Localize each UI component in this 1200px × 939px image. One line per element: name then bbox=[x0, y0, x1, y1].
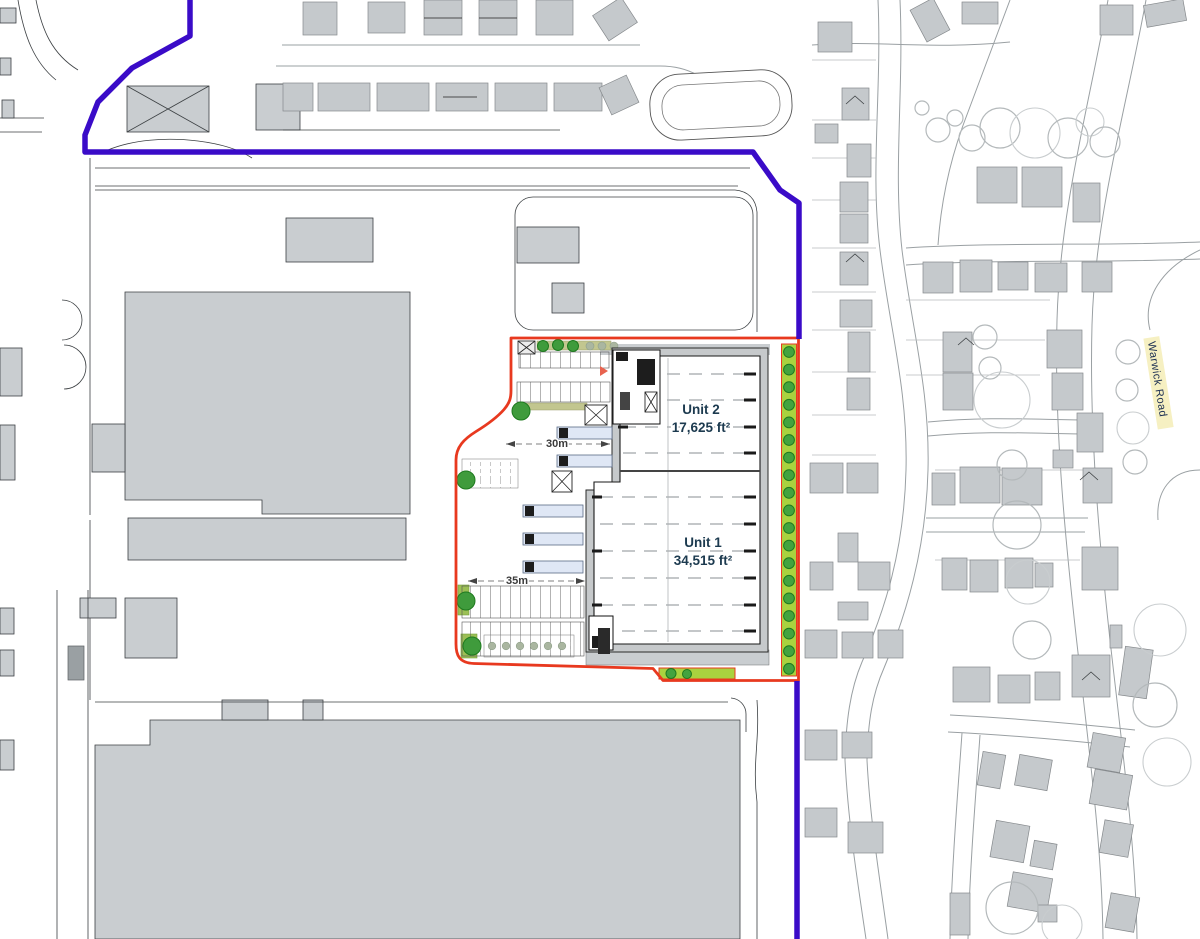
development-site: 30m 35m Unit 2 17,625 ft² Unit 1 34,515 … bbox=[457, 340, 797, 680]
blue-site-boundary-north bbox=[85, 0, 799, 339]
southwest-core bbox=[589, 616, 613, 654]
northwest-core bbox=[613, 350, 660, 424]
warwick-road-label: Warwick Road bbox=[1143, 336, 1173, 429]
site-plan-drawing: Warwick Road bbox=[0, 0, 1200, 939]
unit-1-name: Unit 1 bbox=[684, 535, 722, 550]
yard-dimension-35m: 35m bbox=[468, 575, 585, 587]
pond-outline bbox=[648, 68, 793, 141]
east-residential-neighborhood: Warwick Road bbox=[805, 0, 1200, 939]
unit-2-name: Unit 2 bbox=[682, 402, 720, 417]
dimension-30m-text: 30m bbox=[546, 438, 568, 450]
unit-1-area: 34,515 ft² bbox=[674, 553, 733, 568]
unit-2-area: 17,625 ft² bbox=[672, 420, 731, 435]
dimension-35m-text: 35m bbox=[506, 575, 528, 587]
site-plan-canvas: Warwick Road bbox=[0, 0, 1200, 939]
house-footprints bbox=[805, 0, 1187, 935]
proposed-building bbox=[586, 348, 768, 654]
yard-dimension-30m: 30m bbox=[506, 438, 610, 450]
